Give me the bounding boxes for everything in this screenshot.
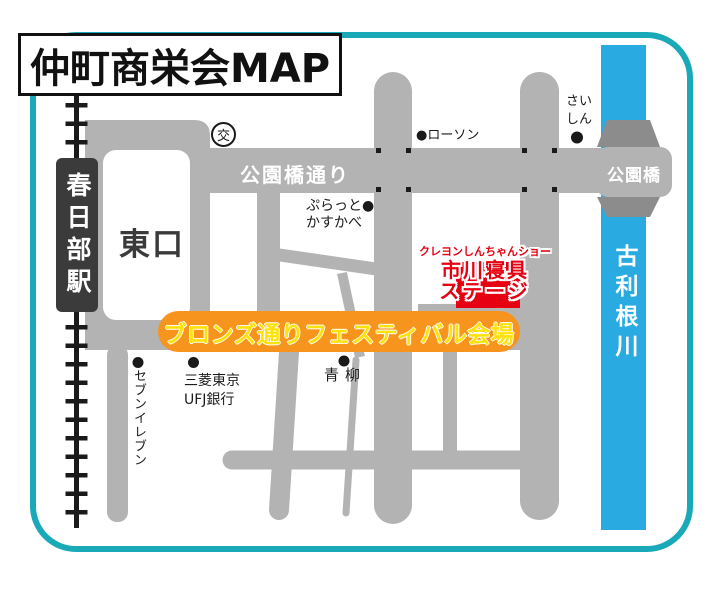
label-bank-line2: UFJ銀行 (184, 391, 240, 410)
label-seven-eleven: セブンイレブン (129, 369, 148, 473)
label-koenbashi-dori: 公園橋通り (240, 159, 350, 188)
stage-venue-line: 市川寝具 (412, 259, 558, 281)
label-mitsubishi-ufj-bank: 三菱東京 UFJ銀行 (184, 372, 240, 410)
label-aoyagi: 青柳 (324, 367, 366, 384)
poi-dot-bank (188, 357, 199, 368)
label-saishin-line2: しん (566, 111, 592, 129)
festival-banner-label: ブロンズ通りフェスティバル会場 (164, 315, 515, 349)
poi-dot-saishin (571, 132, 583, 144)
label-saishin-line1: さい (566, 93, 592, 111)
bridge-abutment-top (597, 120, 660, 147)
map-title-box: 仲町商栄会MAP (18, 33, 342, 96)
stage-show-line: クレヨンしんちゃんショー (412, 245, 558, 259)
label-east-exit: 東口 (112, 219, 192, 264)
stage-label-group: クレヨンしんちゃんショー 市川寝具 ステージ (412, 245, 558, 302)
road-south-slanted (279, 352, 289, 510)
road-south-left (107, 345, 128, 522)
bridge-abutment-bottom (597, 197, 660, 217)
label-kasukabe-station: 春日部駅 (58, 163, 96, 309)
road-narrow-south (443, 350, 457, 460)
map-title: 仲町商栄会MAP (30, 36, 330, 94)
label-platto-line2: かすかべ (306, 215, 374, 232)
festival-banner: ブロンズ通りフェスティバル会場 (158, 311, 520, 352)
shopping-street-map: 仲町商栄会MAP 交 公園橋通り 公園橋 古利根川 春日部駅 東口 ●ローソン … (0, 0, 725, 600)
label-lawson: ●ローソン (416, 127, 479, 144)
label-platto-line1: ぷらっと● (306, 198, 374, 215)
stage-stage-line: ステージ (412, 281, 558, 302)
poi-dot-seven-eleven (133, 357, 144, 368)
label-platto-kasukabe: ぷらっと● かすかべ (306, 198, 374, 232)
label-furutone-river: 古利根川 (601, 244, 641, 364)
label-saishin: さい しん (566, 93, 592, 129)
label-bank-line1: 三菱東京 (184, 372, 240, 391)
police-box-icon: 交 (211, 122, 236, 147)
police-box-label: 交 (217, 125, 230, 144)
poi-dot-aoyagi (339, 356, 350, 367)
label-koenbashi-bridge: 公園橋 (596, 161, 672, 186)
